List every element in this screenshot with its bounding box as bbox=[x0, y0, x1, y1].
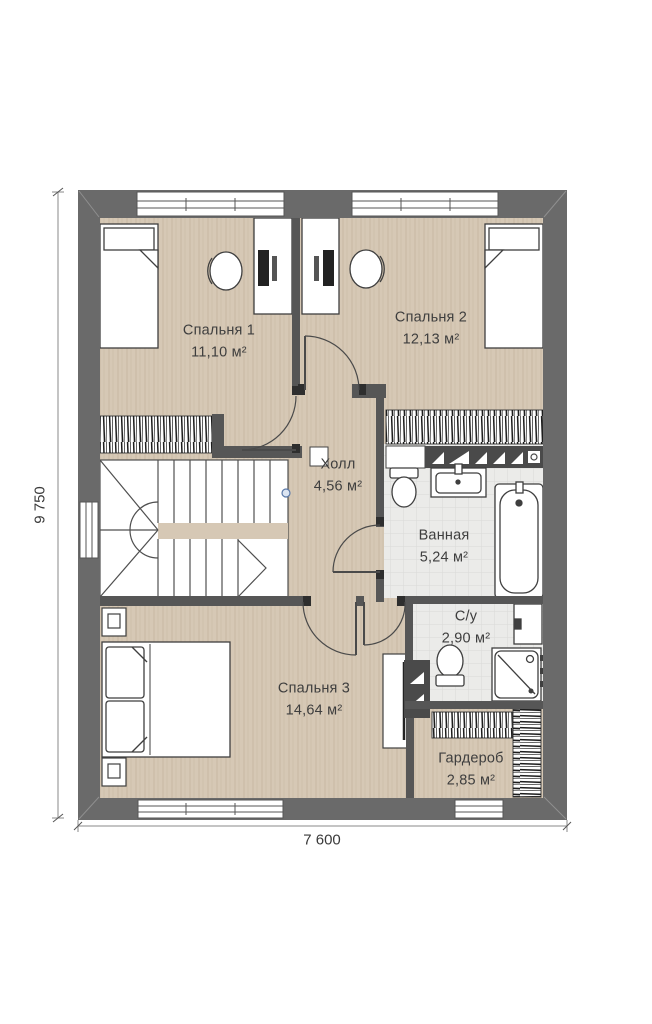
room-label-bedroom-1: Спальня 1 11,10 м² bbox=[183, 320, 255, 364]
keyboard-icon bbox=[272, 256, 277, 281]
room-name: Гардероб bbox=[438, 748, 503, 770]
closet-hatch-bedroom1 bbox=[100, 414, 224, 458]
bathtub bbox=[495, 482, 543, 598]
bed-single-1 bbox=[100, 224, 158, 348]
keyboard-icon bbox=[314, 256, 319, 281]
staircase bbox=[100, 460, 290, 597]
room-area: 12,13 м² bbox=[395, 329, 467, 351]
nightstand-2 bbox=[102, 758, 126, 786]
room-label-hall: Холл 4,56 м² bbox=[314, 454, 362, 498]
room-name: Спальня 3 bbox=[278, 678, 350, 700]
sink bbox=[431, 464, 486, 497]
room-area: 11,10 м² bbox=[183, 342, 255, 364]
room-area: 2,85 м² bbox=[438, 770, 503, 792]
room-label-bathroom: Ванная 5,24 м² bbox=[419, 525, 470, 569]
faucet-icon bbox=[516, 482, 523, 493]
window-wardrobe bbox=[455, 800, 503, 818]
tv-unit bbox=[404, 660, 430, 718]
room-area: 14,64 м² bbox=[278, 700, 350, 722]
desk-1 bbox=[254, 218, 292, 314]
room-label-bedroom-3: Спальня 3 14,64 м² bbox=[278, 678, 350, 722]
bed-single-2 bbox=[485, 224, 543, 348]
room-name: Спальня 1 bbox=[183, 320, 255, 342]
closet-hatch-bedroom2 bbox=[386, 410, 543, 444]
room-area: 2,90 м² bbox=[442, 628, 490, 650]
faucet-icon bbox=[455, 464, 462, 474]
room-area: 4,56 м² bbox=[314, 476, 362, 498]
room-area: 5,24 м² bbox=[419, 547, 470, 569]
stair-node-dot bbox=[282, 489, 290, 497]
room-label-bedroom-2: Спальня 2 12,13 м² bbox=[395, 307, 467, 351]
floor-plan-page: Спальня 1 11,10 м² Спальня 2 12,13 м² Хо… bbox=[0, 0, 652, 1024]
floor-plan-drawing bbox=[0, 0, 652, 1024]
room-label-wardrobe: Гардероб 2,85 м² bbox=[438, 748, 503, 792]
bathroom-cabinet-row bbox=[386, 446, 543, 468]
window-staircase bbox=[80, 502, 98, 558]
shower-tray bbox=[492, 648, 546, 701]
room-name: Холл bbox=[314, 454, 362, 476]
room-name: Спальня 2 bbox=[395, 307, 467, 329]
room-name: С/у bbox=[442, 606, 490, 628]
monitor-icon bbox=[258, 250, 269, 286]
toilet-bathroom bbox=[390, 468, 418, 507]
handle-icon bbox=[515, 619, 521, 629]
room-label-wc: С/у 2,90 м² bbox=[442, 606, 490, 650]
washing-machine bbox=[514, 604, 542, 644]
room-name: Ванная bbox=[419, 525, 470, 547]
nightstand-1 bbox=[102, 608, 126, 636]
window-bedroom-2 bbox=[352, 192, 498, 216]
bed-double bbox=[102, 642, 230, 757]
window-bedroom-1 bbox=[137, 192, 284, 216]
dimension-width: 7 600 bbox=[303, 832, 341, 849]
monitor-icon bbox=[323, 250, 334, 286]
window-bedroom-3 bbox=[138, 800, 283, 818]
desk-2 bbox=[302, 218, 339, 314]
toilet-wc bbox=[436, 645, 464, 686]
dimension-height: 9 750 bbox=[32, 486, 49, 524]
